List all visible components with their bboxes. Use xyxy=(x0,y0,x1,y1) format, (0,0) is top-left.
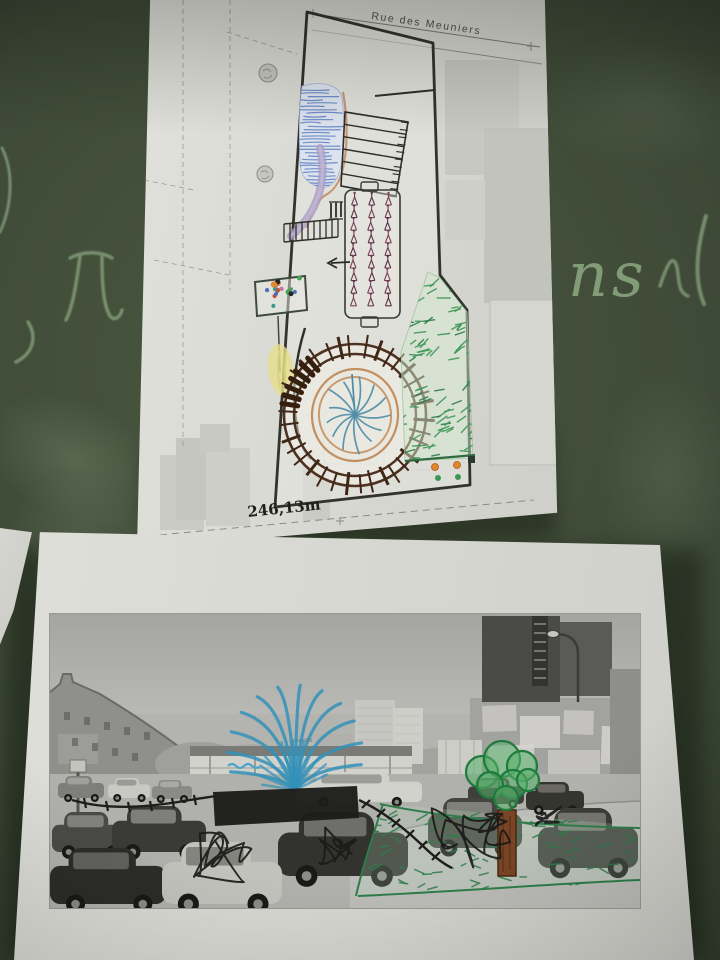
planting-building xyxy=(345,182,400,327)
street-photo-sheet xyxy=(14,530,694,960)
parcel-tree-symbol xyxy=(257,64,277,182)
chalk-fragment: ns xyxy=(568,238,648,311)
fire-escape xyxy=(532,616,548,686)
site-plan-sheet: Rue des Meuniers xyxy=(134,0,558,552)
roman-mark xyxy=(329,202,343,219)
